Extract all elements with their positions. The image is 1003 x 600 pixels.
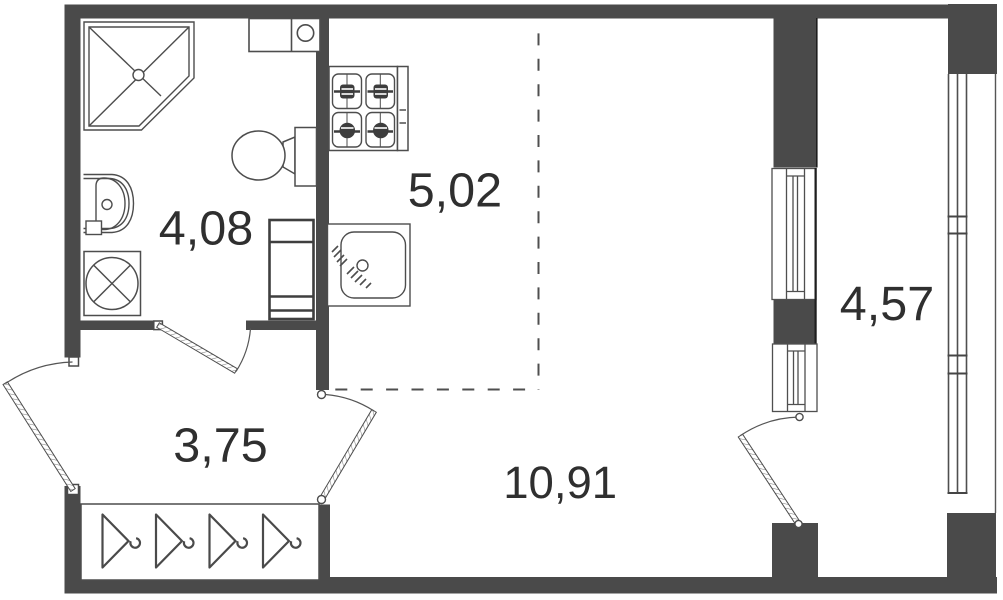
svg-text:10,91: 10,91 (503, 457, 617, 508)
svg-text:4,08: 4,08 (159, 201, 253, 255)
svg-text:5,02: 5,02 (408, 164, 502, 218)
svg-text:4,57: 4,57 (840, 277, 934, 331)
svg-text:3,75: 3,75 (173, 418, 267, 472)
